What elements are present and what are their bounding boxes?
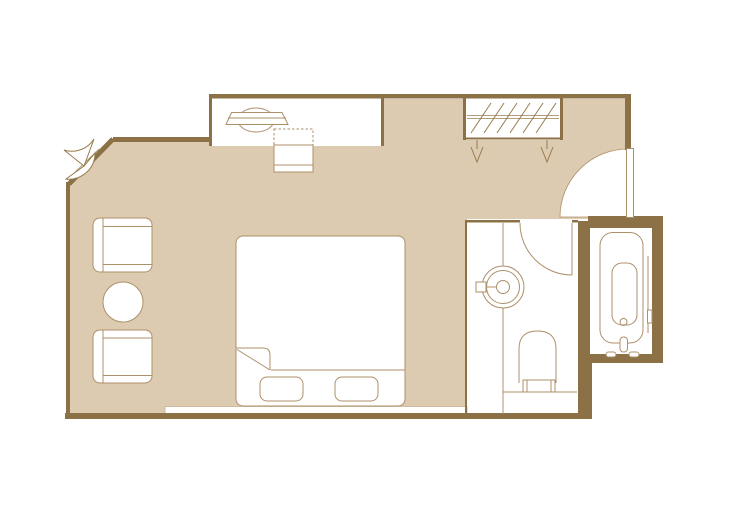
armchair-bottom: Armchair (lower) [93,330,152,383]
wall-bathroom-step [578,354,592,419]
floor-plan: Hotel Guestroom Floor Plan Bedroom Entry… [0,0,729,516]
wall-alcove-right [381,94,384,146]
wall-bathroom-left [465,220,467,415]
floor-plan-canvas: Hotel Guestroom Floor Plan Bedroom Entry… [0,0,729,516]
tub-faucet [620,337,628,352]
wall-wardrobe-bottom [463,138,563,140]
bathroom-area [465,221,578,415]
tub-handle-left [606,352,616,357]
pillow-right: Pillow (right) [335,377,378,401]
tub-control [648,310,653,323]
wall-left-of-alcove [113,137,212,142]
luggage-rack-body [274,145,313,172]
wall-wardrobe-left [463,94,466,140]
wall-left [66,182,70,415]
wall-tubroom-left [578,221,590,363]
wall-bottom [65,413,592,419]
wall-right-upper [625,97,631,150]
entry-door-leaf: Entry door swing [627,149,634,218]
toilet-tank [523,380,555,392]
wall-wardrobe-right [560,94,563,140]
wall-bathroom-top-jamb [572,220,578,223]
bed: King bed with turned-down sheet Pillow (… [236,236,405,406]
pillow-left: Pillow (left) [260,377,303,401]
side-table: Round side table [103,282,143,322]
armchair-top: Armchair (upper) [93,218,152,272]
wall-entry-lower [588,216,663,228]
wall-bathroom-top-left [465,220,520,223]
wall-top [209,94,631,99]
wall-tubroom-right [652,216,663,363]
headboard-bench [165,407,467,414]
tub-handle-right [629,352,639,357]
basin-faucet [476,282,486,292]
